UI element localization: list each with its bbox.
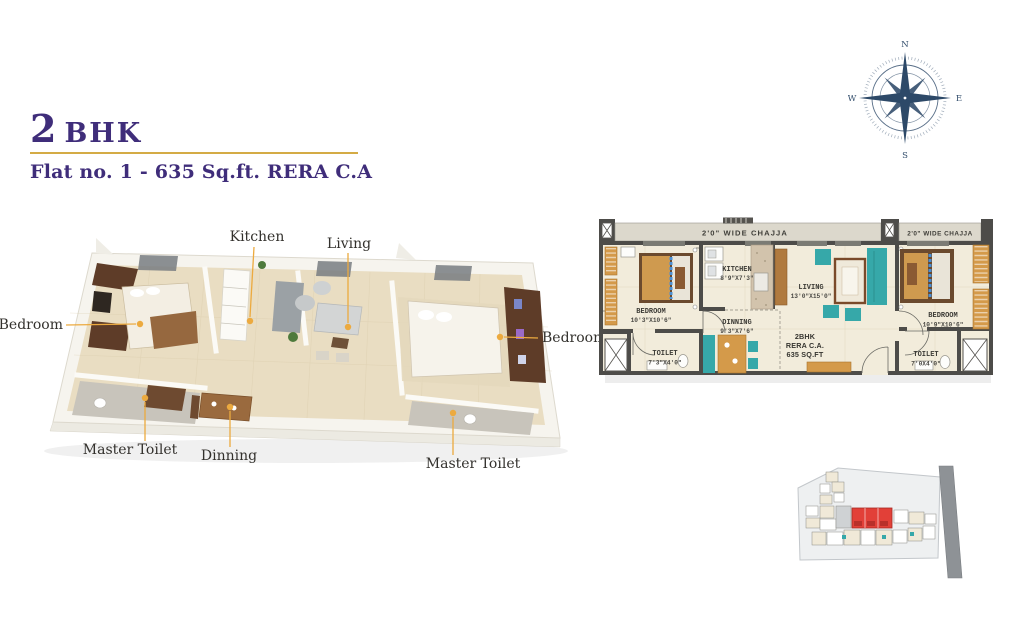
living-dim: 13'0"X15'0" <box>791 293 832 300</box>
toilet-right-dim: 7'0X4'0" <box>911 361 941 368</box>
label-bedroom-left: Bedroom <box>0 317 63 333</box>
label-master-toilet-left: Master Toilet <box>83 442 178 458</box>
label-bedroom-right: Bedroom <box>542 330 600 346</box>
compass-e: E <box>956 94 962 104</box>
compass-n: N <box>901 40 909 50</box>
toilet-left-name: TOILET <box>652 350 677 358</box>
site-road <box>939 466 962 578</box>
title-number: 2 <box>30 106 57 151</box>
living-name: LIVING <box>798 284 823 292</box>
unit-info-line1: 2BHK <box>795 332 816 341</box>
dinning-name: DINNING <box>722 319 751 327</box>
leader-dot-master-toilet-right <box>450 410 456 416</box>
compass-s: S <box>902 151 908 161</box>
kitchen-dim: 8'9"X7'3" <box>720 275 753 282</box>
plan-shadow <box>605 375 991 383</box>
toilet-right-name: TOILET <box>913 351 938 359</box>
kitchen-name: KITCHEN <box>722 266 751 274</box>
site-key-plan <box>792 458 972 584</box>
title-block: 2BHK Flat no. 1 - 635 Sq.ft. RERA C.A <box>30 110 372 183</box>
compass-w: W <box>848 94 857 104</box>
label-kitchen: Kitchen <box>230 229 285 245</box>
unit-info-line2: RERA C.A. <box>786 341 824 350</box>
title-suffix: BHK <box>64 118 142 149</box>
bedroom-left-dim: 10'3"X10'6" <box>631 317 672 324</box>
chajja-right-label: 2'0" WIDE CHAJJA <box>907 231 972 238</box>
flat-subtitle: Flat no. 1 - 635 Sq.ft. RERA C.A <box>30 161 372 183</box>
label-living: Living <box>327 236 371 252</box>
dinning-dim: 9'3"X7'6" <box>720 328 753 335</box>
leader-dot-master-toilet-left <box>142 395 148 401</box>
leader-dot-bedroom-right <box>497 334 503 340</box>
floor-plan-3d: Kitchen Living Bedroom Bedroom Master To… <box>0 225 600 480</box>
label-master-toilet-right: Master Toilet <box>426 456 521 472</box>
page-title: 2BHK <box>30 110 372 148</box>
bedroom-right-dim: 10'9"X10'6" <box>923 322 964 329</box>
floor-plan-2d: 2'0" WIDE CHAJJA 2'0" WIDE CHAJJA <box>595 215 997 387</box>
toilet-left-dim: 7'3"X4'0" <box>648 360 681 367</box>
label-dinning: Dinning <box>201 448 257 464</box>
chajja-left-label: 2'0" WIDE CHAJJA <box>702 229 788 238</box>
bedroom-right-name: BEDROOM <box>928 312 957 320</box>
leader-dot-living <box>345 324 351 330</box>
compass-rose: N E S W <box>848 36 966 162</box>
leader-dot-dinning <box>227 404 233 410</box>
unit-info-line3: 635 SQ.FT <box>787 350 824 359</box>
title-underline <box>30 152 358 154</box>
leader-dot-bedroom-left <box>137 321 143 327</box>
chajja-strip: 2'0" WIDE CHAJJA 2'0" WIDE CHAJJA <box>599 218 993 244</box>
bedroom-left-name: BEDROOM <box>636 308 665 316</box>
brochure-page: 2BHK Flat no. 1 - 635 Sq.ft. RERA C.A N … <box>0 0 1024 639</box>
leader-dot-kitchen <box>247 318 253 324</box>
site-highlighted-unit <box>852 508 892 528</box>
